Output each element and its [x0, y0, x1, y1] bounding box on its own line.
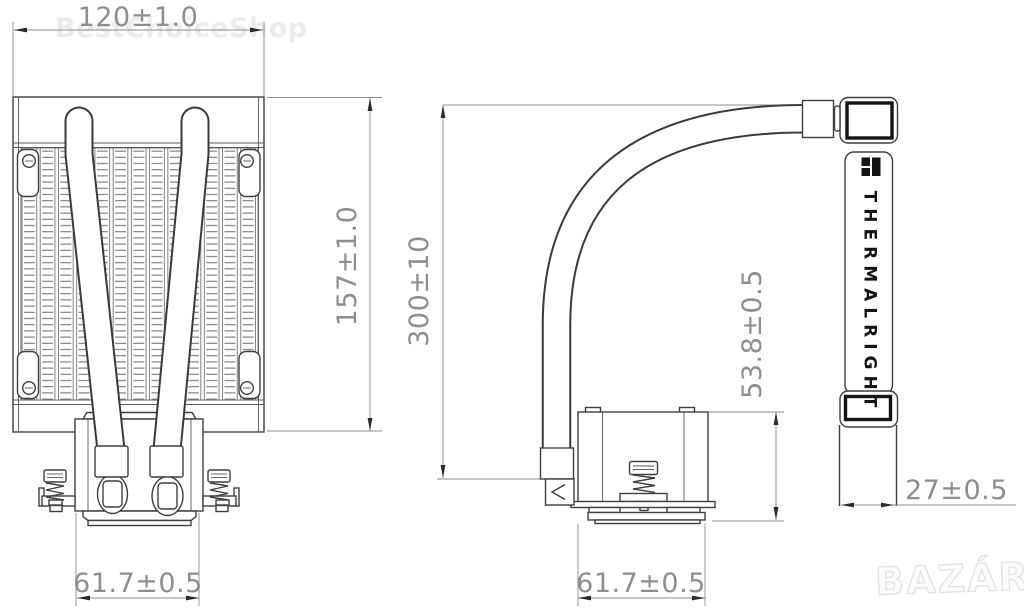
arrowhead	[774, 507, 779, 520]
pump-body-side	[578, 412, 708, 502]
dim-label-radiator-height: 157±1.0	[332, 206, 363, 327]
arrowhead	[14, 28, 27, 33]
arrowhead	[841, 503, 854, 508]
radiator-side: THERMALRIGHT	[840, 98, 898, 507]
radiator-screw-icon	[241, 155, 254, 168]
dim-label-radiator-width: 120±1.0	[78, 2, 199, 33]
dim-label-pump-height: 53.8±0.5	[737, 269, 768, 399]
cold-plate-side	[588, 513, 705, 521]
front-view: 120±1.0	[13, 2, 382, 606]
arrowhead	[441, 105, 446, 118]
radiator-screw-icon	[241, 382, 254, 395]
dim-label-pump-width-side: 61.7±0.5	[576, 568, 706, 599]
radiator-top-port	[847, 103, 892, 138]
watermark-bottom-right: BAZÁR	[875, 554, 1024, 603]
arrowhead	[368, 98, 373, 111]
dim-label-pump-width-front: 61.7±0.5	[73, 568, 203, 599]
dim-label-radiator-thickness: 27±0.5	[905, 475, 1008, 506]
pump-side	[571, 408, 715, 524]
tube-elbow-side	[541, 448, 575, 505]
cold-plate-base	[88, 521, 191, 526]
diagram-canvas: BestChoiceShop 120±1.0	[0, 0, 1024, 608]
side-view: 300±10	[404, 98, 1016, 607]
fin-area	[21, 148, 258, 400]
fitting-nipple	[835, 106, 841, 131]
dim-label-tube-length: 300±10	[404, 235, 435, 347]
arrowhead	[368, 418, 373, 431]
pump-flange	[571, 502, 715, 508]
dimension-pump-width-front: 61.7±0.5	[73, 513, 203, 606]
dimension-radiator-height: 157±1.0	[267, 98, 382, 432]
arrowhead	[881, 503, 894, 508]
arrowhead	[774, 412, 779, 425]
radiator-front	[13, 97, 264, 432]
arrowhead	[441, 465, 446, 478]
cold-plate	[83, 511, 196, 521]
spring-screw-right	[203, 470, 239, 512]
dimension-pump-height: 53.8±0.5	[708, 269, 784, 521]
pump-body	[75, 419, 203, 511]
radiator-screw-icon	[23, 155, 36, 168]
brand-text: THERMALRIGHT	[860, 191, 880, 414]
spring-screw-left	[39, 470, 75, 512]
dimension-pump-width-side: 61.7±0.5	[576, 524, 706, 606]
tube-fitting-top	[803, 101, 841, 138]
radiator-screw-icon	[23, 382, 36, 395]
technical-drawing: BestChoiceShop 120±1.0	[0, 0, 1024, 608]
dimension-radiator-thickness: 27±0.5	[841, 475, 1016, 507]
